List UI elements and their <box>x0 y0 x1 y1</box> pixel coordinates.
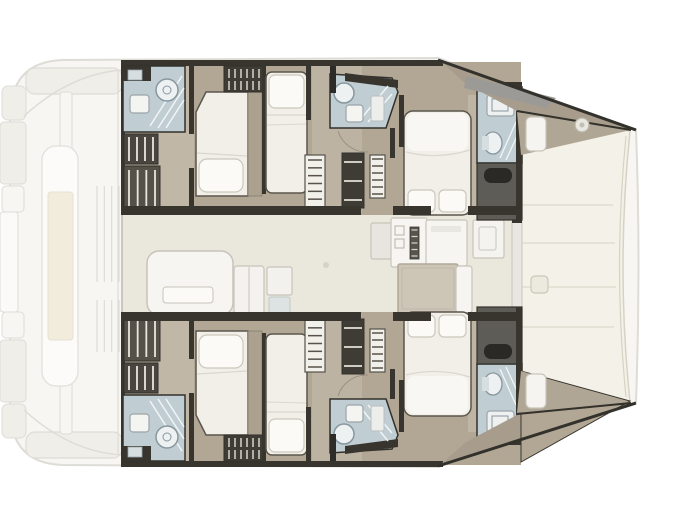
galley-island-top <box>431 226 461 232</box>
aft-bathroom-top-toilet <box>130 95 149 113</box>
stern-step-bot-1 <box>2 404 26 438</box>
single-berth-top-pillow <box>269 75 304 108</box>
wall-bottom-c <box>306 407 311 465</box>
aft-bathroom-bottom-sink <box>156 426 178 448</box>
mid-bathroom-bottom-sink <box>334 424 354 444</box>
gray-block-bottom-seat <box>484 344 512 359</box>
mid-bathroom-top-locker <box>330 66 336 93</box>
saloon-settee-table <box>163 287 213 303</box>
wall-bottom-d <box>390 369 395 399</box>
hull-top-outer-wall <box>121 60 443 66</box>
table-foot-dot <box>323 262 329 268</box>
catamaran-floorplan-svg <box>0 0 700 525</box>
wall-bottom-e <box>399 380 404 432</box>
louver-shelf-top-right <box>370 155 385 198</box>
hull-top-saloon-wall-2 <box>393 206 431 215</box>
aft-bathroom-bottom-toilet <box>130 414 149 432</box>
gray-block-top-seat <box>484 168 512 183</box>
wall-top-e <box>399 95 404 147</box>
mid-bathroom-bottom-counter <box>371 406 384 431</box>
wall-top-d <box>390 128 395 158</box>
foredeck-panel <box>517 110 630 402</box>
stern-step-top-1 <box>2 86 26 120</box>
galley-counter-aft <box>371 223 393 259</box>
bow-seat-top <box>526 117 546 151</box>
stern-step-bot-3 <box>2 312 24 338</box>
stern-step-top-3 <box>2 186 24 212</box>
fwd-bed-top-duvet <box>407 113 468 151</box>
saloon-front-door <box>512 222 522 310</box>
stern-step-bot-2 <box>0 340 26 402</box>
swim-platform-inner <box>48 192 73 340</box>
hull-bottom-outer-wall <box>121 461 443 467</box>
fwd-cabinet-right <box>473 220 504 258</box>
fwd-bed-bottom-pillow-2 <box>439 315 466 337</box>
floorplan-page <box>0 0 700 525</box>
hull-bottom-saloon-wall-2 <box>393 312 431 321</box>
louver-shelf-bottom-right <box>370 329 385 372</box>
fwd-bathroom-bottom-cistern <box>482 377 489 391</box>
single-berth-bottom-pillow <box>269 419 304 452</box>
mid-bathroom-top-sink <box>334 83 354 103</box>
aft-bathroom-top-sink <box>156 79 178 101</box>
fwd-bathroom-top-cistern <box>482 136 489 150</box>
davit-post-top <box>60 92 72 154</box>
stern-step-mid <box>0 212 18 312</box>
bow-seat-bottom <box>526 374 546 408</box>
fwd-bed-top-pillow-2 <box>439 190 466 212</box>
foredeck-hatch <box>531 276 548 293</box>
aft-bathroom-bottom-counter <box>128 447 142 457</box>
wall-top-a1 <box>189 62 194 134</box>
mid-bathroom-top-toilet <box>346 105 363 122</box>
louver-cabinet-top <box>224 66 264 92</box>
dining-table <box>398 264 458 313</box>
wall-top-c <box>306 62 311 120</box>
louver-cabinet-bottom <box>224 435 264 461</box>
galley-counter-main <box>391 218 427 267</box>
saloon-settee <box>147 251 233 315</box>
hull-bottom-saloon-wall-3 <box>468 312 521 321</box>
hull-top-saloon-wall-1 <box>121 206 361 215</box>
mid-bathroom-top-counter <box>371 96 384 121</box>
fwd-bed-bottom-duvet <box>407 376 468 414</box>
windlass-center <box>580 123 585 128</box>
mid-bathroom-bottom-locker <box>330 434 336 461</box>
dining-bench <box>456 266 472 313</box>
wall-bottom-a1 <box>189 393 194 465</box>
mid-bathroom-bottom-toilet <box>346 405 363 422</box>
hull-bottom-saloon-wall-1 <box>121 312 361 321</box>
aft-bed-top-pillow <box>199 159 243 192</box>
hull-top-saloon-wall-3 <box>468 206 521 215</box>
aft-bed-bottom-shelf <box>248 331 262 435</box>
aft-bed-top-shelf <box>248 92 262 196</box>
aft-bed-bottom-pillow <box>199 335 243 368</box>
nav-desk <box>267 267 292 295</box>
aft-bathroom-top-counter <box>128 70 142 80</box>
stern-step-top-2 <box>0 122 26 184</box>
nav-chair <box>269 297 290 313</box>
